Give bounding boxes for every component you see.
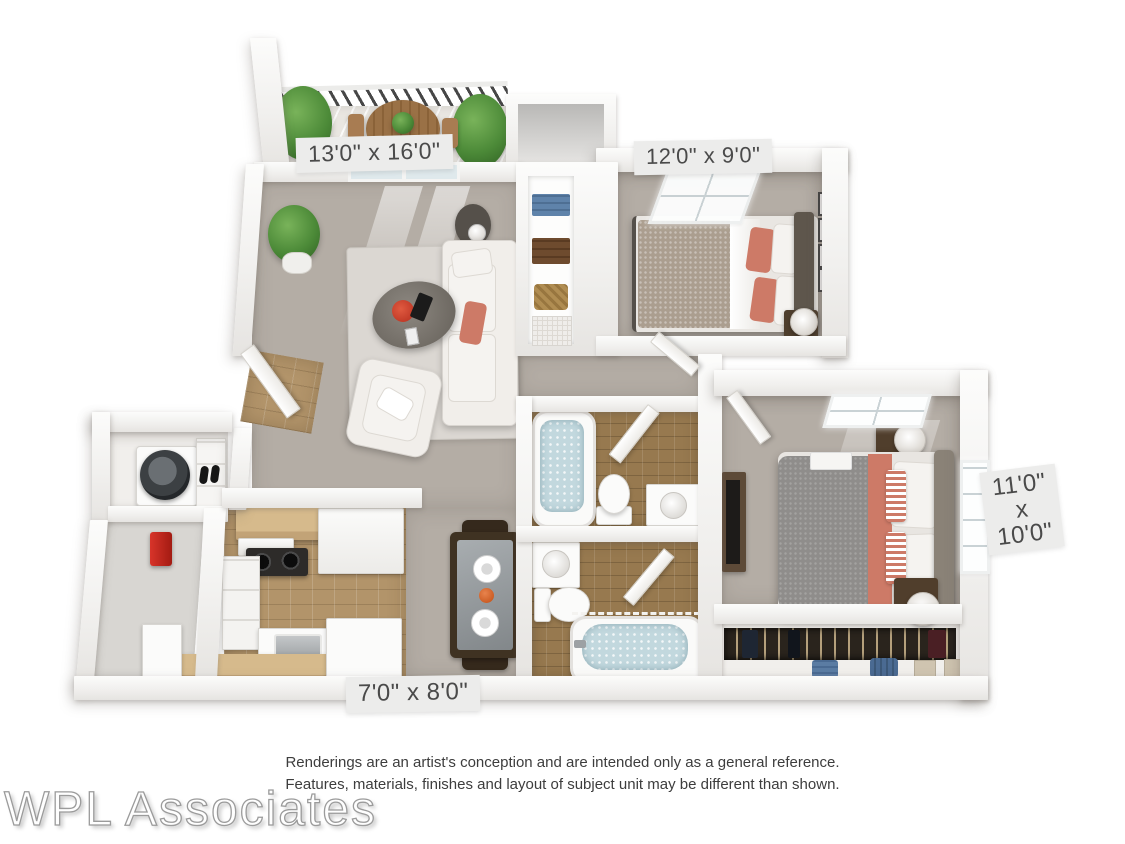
balcony-plant-right (452, 94, 508, 168)
bed-master-striped-pillow (886, 532, 906, 584)
hanging-garment (928, 630, 946, 658)
closet-rod-clothes (724, 628, 956, 660)
dim-label-line: 10'0" (992, 518, 1059, 551)
tub-faucet (574, 640, 586, 648)
watermark-logo: WPL Associates (4, 782, 377, 837)
plant-pot (282, 252, 312, 274)
storage-appliance (142, 624, 182, 678)
kitchen-top-wall (222, 488, 422, 508)
dim-label-bedroom-small: 12'0" x 9'0" (634, 139, 773, 175)
refrigerator (318, 508, 404, 574)
bathtub-bottom-water (582, 624, 688, 670)
bathroom-right-wall (698, 354, 722, 682)
bedroom-master-top-wall (714, 370, 988, 396)
kitchen-end-counter (326, 618, 402, 684)
vanity-top-basin (660, 492, 687, 519)
bathroom-top-wall (516, 396, 700, 412)
storage-bag (870, 658, 898, 678)
dim-label-bedroom-master: 11'0" x 10'0" (979, 464, 1065, 556)
bedroom-small-bottom-wall (596, 336, 846, 356)
centerpiece (479, 588, 494, 603)
entry-alcove-recess (518, 104, 604, 162)
toilet-top-bowl (598, 474, 630, 514)
closet-front-wall (714, 604, 962, 624)
disclaimer-line-1: Renderings are an artist's conception an… (0, 752, 1125, 774)
shelf-item-brown (532, 238, 570, 264)
shelf-item-basket (534, 284, 568, 310)
bottom-wall (74, 676, 988, 700)
bed-master-striped-pillow (886, 470, 906, 522)
lamp-small-bedroom (790, 308, 818, 336)
bed-master-blanket (778, 456, 874, 612)
bedroom-small-right-wall (822, 148, 848, 358)
place-setting-plate (473, 555, 501, 583)
dim-label-kitchen: 7'0" x 8'0" (346, 675, 481, 713)
kitchen-side-cabinets (222, 556, 260, 650)
shelf-item-blue (532, 194, 570, 216)
washer-door (140, 450, 190, 500)
bed-master-throw (810, 452, 852, 470)
vanity-bottom-basin (542, 550, 570, 578)
bathroom-middle-wall (516, 526, 700, 542)
dim-label-living-room: 13'0" x 16'0" (296, 134, 454, 173)
sofa-pillow (450, 247, 493, 278)
hanging-garment (742, 630, 758, 658)
place-setting-plate (471, 609, 499, 637)
shelf-item-blanket (532, 316, 572, 346)
hanging-garment (788, 630, 800, 658)
laundry-top-wall (92, 412, 232, 432)
shower-rod (572, 612, 700, 615)
bed-small-blanket (638, 220, 734, 328)
water-heater (150, 532, 172, 566)
bathtub-top-water (540, 420, 584, 512)
patio-table-plant (392, 112, 414, 134)
tv-screen (726, 480, 740, 564)
floorplan-canvas: 13'0" x 16'0" 12'0" x 9'0" 11'0" x 10'0"… (0, 0, 1125, 844)
bedroom-master-top-window (822, 394, 932, 428)
